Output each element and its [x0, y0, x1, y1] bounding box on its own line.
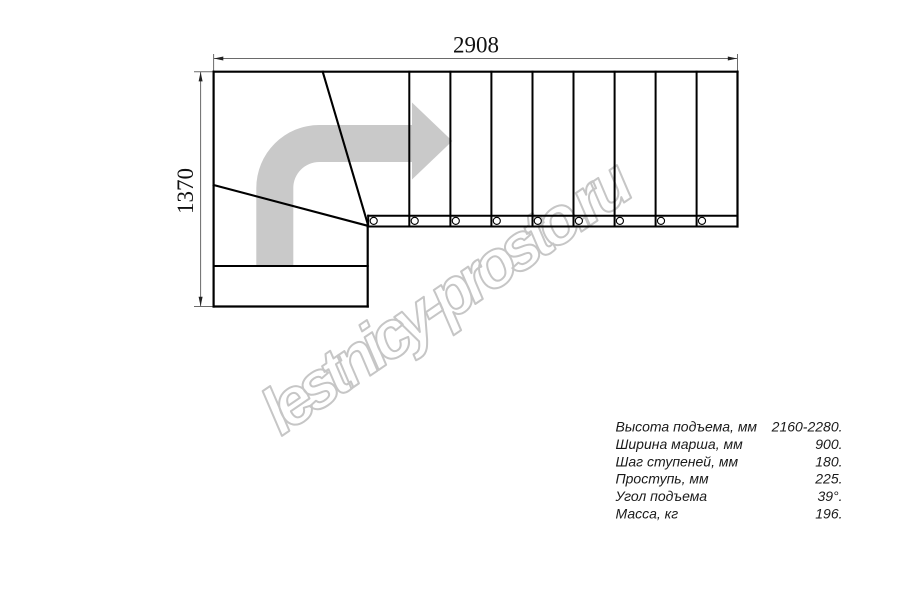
svg-text:2908: 2908 [453, 33, 499, 58]
svg-text:Проступь, мм: Проступь, мм [616, 471, 710, 487]
svg-text:Масса, кг: Масса, кг [616, 506, 679, 522]
svg-text:Шаг ступеней, мм: Шаг ступеней, мм [616, 453, 739, 469]
svg-text:1370: 1370 [173, 168, 198, 214]
svg-text:39°.: 39°. [817, 488, 842, 504]
svg-text:Высота подъема, мм: Высота подъема, мм [616, 419, 758, 435]
svg-text:225.: 225. [814, 471, 842, 487]
svg-text:900.: 900. [815, 436, 842, 452]
svg-text:2160-2280.: 2160-2280. [771, 419, 843, 435]
svg-text:Ширина марша, мм: Ширина марша, мм [616, 436, 744, 452]
svg-text:180.: 180. [815, 453, 842, 469]
svg-text:196.: 196. [815, 506, 842, 522]
svg-text:Угол подъема: Угол подъема [615, 488, 708, 504]
